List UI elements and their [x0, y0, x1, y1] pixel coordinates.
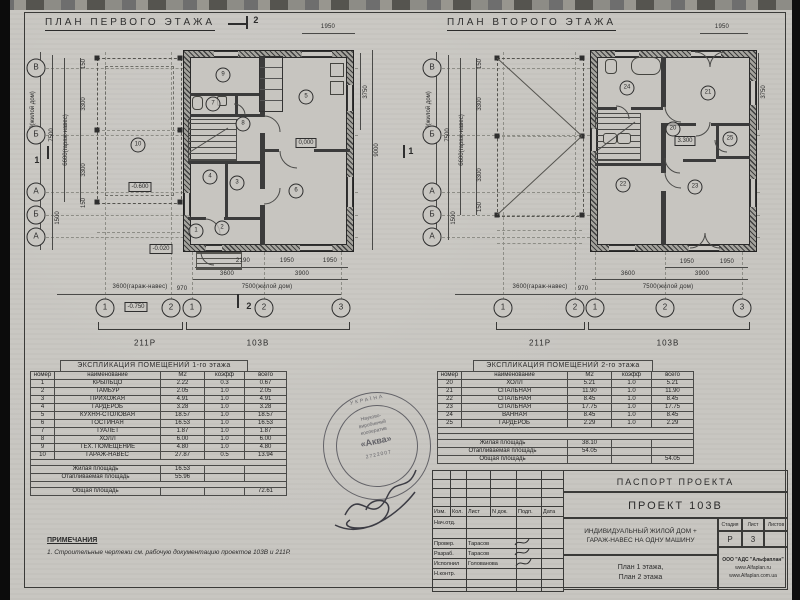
dim-line [455, 294, 742, 295]
project-description-line1: ИНДИВИДУАЛЬНЫЙ ЖИЛОЙ ДОМ + [564, 527, 717, 536]
revision-row [433, 471, 564, 480]
dim-line [592, 279, 748, 280]
dim-line [57, 294, 341, 295]
table-header-row: номернаименованиеМ2коэффвсего [31, 372, 287, 380]
company-cell: ООО "АДС "Альфаплан" www.Alfaplan.ru www… [718, 547, 788, 590]
dim-label: 970 [177, 286, 188, 292]
interior-wall [661, 57, 666, 107]
plan2-title: ПЛАН ВТОРОГО ЭТАЖА [447, 17, 616, 31]
door-opening [689, 245, 719, 251]
dim-label: 3300 [81, 163, 87, 176]
project-description-line2: ГАРАЖ-НАВЕС НА ОДНУ МАШИНУ [564, 536, 717, 545]
project-description: ИНДИВИДУАЛЬНЫЙ ЖИЛОЙ ДОМ + ГАРАЖ-НАВЕС Н… [563, 518, 718, 555]
axis-bubble: Б [423, 206, 442, 225]
dim-line [758, 53, 759, 130]
axis-bubble: 3 [332, 299, 351, 318]
table-row: 7ТУАЛЕТ1.871.01.87 [31, 428, 287, 436]
table-row: 23СПАЛЬНАЯ17.751.017.75 [438, 404, 694, 412]
group-bracket [496, 322, 585, 330]
titleblock-row: Разраб.Тарасов [433, 549, 564, 559]
axis-bubble: 1 [494, 299, 513, 318]
axis-bubble: В [423, 59, 442, 78]
room-bubble-6: 6 [289, 184, 304, 199]
house-plan2 [590, 50, 757, 252]
door-opening [206, 245, 222, 251]
titleblock-row [433, 580, 564, 592]
axis-bubble: 2 [656, 299, 675, 318]
group-bracket [98, 322, 183, 330]
table-row: 2ТАМБУР2.051.02.05 [31, 388, 287, 396]
sink-fixture [603, 133, 617, 144]
section-mark-line [246, 16, 248, 29]
sheet-value: 3 [742, 531, 764, 547]
dim-label: 1500 [451, 211, 457, 224]
carport-post [95, 128, 100, 133]
interior-wall [190, 114, 262, 117]
level-mark: -0.750 [124, 302, 147, 312]
table-row: 20ХОЛЛ5.211.05.21 [438, 380, 694, 388]
dim-line [52, 55, 53, 250]
door-opening [691, 51, 721, 57]
axis-bubble: 2 [566, 299, 585, 318]
project-group-label: 103В [247, 339, 270, 348]
table-row: 21СПАЛЬНАЯ11.901.011.90 [438, 388, 694, 396]
titleblock-row [433, 529, 564, 539]
stage-value: Р [718, 531, 742, 547]
level-mark: -0.020 [149, 244, 172, 254]
dim-label: 150 [477, 202, 483, 212]
dim-line [193, 279, 348, 280]
toilet-fixture [192, 96, 203, 110]
scan-edge-top [0, 0, 800, 10]
axis-bubble: А [27, 183, 46, 202]
axis-bubble: 1 [183, 299, 202, 318]
table-summary-row: Общая площадь54.05 [438, 456, 694, 464]
room-bubble-4: 4 [203, 170, 218, 185]
dim-label: 6600(гараж-навес) [63, 114, 69, 166]
axis-bubble: А [27, 228, 46, 247]
window [300, 245, 332, 251]
table-row: 22СПАЛЬНАЯ8.451.08.45 [438, 396, 694, 404]
titleblock-row: Н.контр. [433, 569, 564, 580]
carport-post [495, 56, 500, 61]
table-row: 25ГАРДЕРОБ2.291.02.29 [438, 420, 694, 428]
window [347, 85, 353, 111]
dim-label: 3600(гараж-навес) [113, 284, 168, 290]
room-bubble-7: 7 [206, 97, 221, 112]
axis-bubble: 1 [96, 299, 115, 318]
interior-wall [225, 164, 228, 217]
carport-post [178, 128, 183, 133]
titleblock-row: Провер.Тарасов [433, 539, 564, 549]
dim-label: 150 [477, 59, 483, 69]
window [302, 51, 332, 57]
dim-label: 7500(жилой дом) [643, 284, 694, 290]
axis-bubble: А [423, 228, 442, 247]
table-row: 4ГАРДЕРОБ3.281.03.28 [31, 404, 287, 412]
room-bubble-23: 23 [688, 180, 703, 195]
dim-label: 1500 [55, 211, 61, 224]
dim-line [372, 50, 373, 250]
axis-bubble: А [423, 183, 442, 202]
axis-bubble: В [27, 59, 46, 78]
sheet-title-cell: План 1 этажа, План 2 этажа [563, 555, 718, 590]
titleblock-row: Нач.отд. [433, 517, 564, 529]
section-mark-label: 2 [253, 15, 258, 25]
kitchen-unit [330, 81, 344, 95]
interior-wall [224, 217, 261, 220]
interior-wall [314, 149, 350, 152]
carport-post [495, 134, 500, 139]
dim-label: 970 [578, 286, 589, 292]
interior-wall [631, 107, 663, 110]
carport-line [97, 232, 180, 233]
room-bubble-1: 1 [189, 224, 204, 239]
dim-label: 1950 [280, 258, 294, 264]
company-url-1: www.Alfaplan.ru [719, 564, 787, 572]
notes-title: ПРИМЕЧАНИЯ [47, 537, 97, 544]
dim-line [80, 58, 81, 202]
level-mark: -0.600 [128, 182, 151, 192]
dim-line [302, 33, 355, 34]
window [347, 177, 353, 207]
dim-label: 3750 [363, 85, 369, 98]
section-mark-label: 1 [34, 155, 39, 165]
dim-line [700, 33, 748, 34]
project-group-label: 103В [657, 339, 680, 348]
table-row: 10ГАРАЖ-НАВЕС27.870.513.94 [31, 452, 287, 460]
window [615, 51, 639, 57]
project-group-label: 211Р [529, 339, 551, 348]
company-url-2: www.Alfaplan.com.ua [719, 572, 787, 580]
table-summary-row: Жилая площадь16.53 [31, 466, 287, 474]
section-mark-label: 1 [408, 146, 413, 156]
section-mark-line [237, 294, 239, 308]
dim-label: 3600 [621, 271, 635, 277]
room-bubble-5: 5 [299, 90, 314, 105]
table-summary-row: Отапливаемая площадь55.96 [31, 474, 287, 482]
dim-label: 150 [81, 198, 87, 208]
table-header-row: номернаименованиеМ2коэффвсего [438, 372, 694, 380]
axis-bubble: 1 [586, 299, 605, 318]
dim-label: 7500 [445, 128, 451, 141]
axis-bubble: 3 [733, 299, 752, 318]
dim-label: 150 [81, 59, 87, 69]
titleblock-left-grid: Изм.Кол.ЛистN док.Подп.Дата Нач.отд. Про… [432, 470, 564, 592]
dim-label: 3300 [477, 97, 483, 110]
dim-label: 1950 [715, 24, 729, 30]
dim-label: 3900 [695, 271, 709, 277]
house-plan1 [183, 50, 354, 252]
table-summary-row: Жилая площадь38.10 [438, 440, 694, 448]
interior-wall [661, 191, 666, 245]
company-name: ООО "АДС "Альфаплан" [719, 556, 787, 564]
dim-label: 1950 [720, 259, 734, 265]
dim-line [476, 58, 477, 215]
dim-label: 3900 [295, 271, 309, 277]
group-bracket [186, 322, 350, 330]
titleblock-row: ИсполнилГолованова [433, 559, 564, 569]
notes-item-1: 1. Строительные чертежи см. рабочую доку… [47, 549, 291, 556]
door-opening [184, 193, 190, 215]
table-row: 3ПРИХОЖАЯ4.911.04.91 [31, 396, 287, 404]
window [750, 179, 756, 207]
table-row: 8ХОЛЛ6.001.06.00 [31, 436, 287, 444]
dim-label: 7500 [49, 128, 55, 141]
carport-post [95, 56, 100, 61]
sheet-label-cell: Лист [742, 518, 764, 531]
floor2-table: номернаименованиеМ2коэффвсего 20ХОЛЛ5.21… [437, 371, 694, 464]
carport-post [580, 134, 585, 139]
section-mark-line [403, 145, 405, 158]
sheets-value [764, 531, 788, 547]
room-bubble-22: 22 [616, 178, 631, 193]
carport-post [580, 56, 585, 61]
table-row: 24ВАННАЯ8.451.08.45 [438, 412, 694, 420]
dim-label: 3300 [477, 168, 483, 181]
room-bubble-10: 10 [131, 138, 146, 153]
table-row: 6ГОСТИНАЯ16.531.016.53 [31, 420, 287, 428]
bathtub [631, 57, 661, 75]
section-mark-line [47, 146, 49, 159]
room-bubble-3: 3 [230, 176, 245, 191]
carport-roof-line [497, 243, 582, 244]
carport-post [95, 200, 100, 205]
interior-wall [235, 93, 238, 117]
interior-wall [260, 205, 265, 245]
table-summary-row: Отапливаемая площадь54.05 [438, 448, 694, 456]
section-mark-label: 2 [246, 301, 251, 311]
room-bubble-20: 20 [666, 122, 681, 137]
dim-label: 3300 [81, 97, 87, 110]
kitchen-unit [330, 63, 344, 77]
level-mark: 0,000 [295, 138, 316, 148]
dim-label: 3600 [220, 271, 234, 277]
window [214, 51, 238, 57]
dim-label: 9000 [374, 143, 380, 156]
interior-wall [188, 217, 206, 220]
sink-fixture [617, 133, 631, 144]
plan1-title: ПЛАН ПЕРВОГО ЭТАЖА [45, 17, 215, 31]
carport-roof-line [497, 230, 582, 231]
carport-post [495, 213, 500, 218]
carport-inner-outline [105, 66, 174, 196]
room-bubble-25: 25 [723, 132, 738, 147]
room-bubble-24: 24 [620, 81, 635, 96]
dim-label: 3600(гараж-навес) [513, 284, 568, 290]
project-group-label: 211Р [134, 339, 156, 348]
level-mark: 3.300 [674, 136, 695, 146]
window [591, 129, 597, 151]
interior-wall [716, 156, 750, 159]
vent-shaft [259, 56, 283, 112]
carport-roof-outline [497, 58, 584, 217]
toilet-fixture [605, 59, 617, 74]
axis-bubble: Б [27, 126, 46, 145]
room-bubble-8: 8 [236, 117, 251, 132]
floor1-table: номернаименованиеМ2коэффвсего 1КРЫЛЬЦО2.… [30, 371, 287, 496]
scan-edge-right [792, 0, 800, 600]
sheet-title-line2: План 2 этажа [564, 573, 717, 583]
dim-label: 1950 [323, 258, 337, 264]
dim-label: 7500(жилой дом) [242, 284, 293, 290]
round-stamp: УКРАЇНА Науково- виробничий кооператив «… [310, 379, 445, 512]
table-row: 9ТЕХ. ПОМЕЩЕНИЕ4.801.04.80 [31, 444, 287, 452]
dim-label: 1950 [680, 259, 694, 265]
dim-label: 1950 [321, 24, 335, 30]
revision-row [433, 498, 564, 507]
dim-label: 2190 [236, 258, 250, 264]
table-row: 1КРЫЛЬЦО2.220.30.67 [31, 380, 287, 388]
interior-wall [597, 107, 617, 110]
revision-row [433, 480, 564, 489]
axis-bubble: Б [423, 126, 442, 145]
dim-line [360, 53, 361, 130]
scan-edge-left [0, 0, 10, 600]
window [609, 245, 635, 251]
room-bubble-21: 21 [701, 86, 716, 101]
interior-wall [595, 163, 663, 166]
dim-label: 3750 [761, 85, 767, 98]
window [750, 81, 756, 105]
passport-title: ПАСПОРТ ПРОЕКТА [563, 470, 788, 492]
axis-bubble: Б [27, 206, 46, 225]
section-mark-line [228, 23, 246, 25]
titleblock-header-row: Изм.Кол.ЛистN док.Подп.Дата [433, 507, 564, 517]
dim-line [448, 55, 449, 240]
revision-row [433, 489, 564, 498]
carport-post [580, 213, 585, 218]
project-number: ПРОЕКТ 103В [563, 492, 788, 518]
interior-wall [683, 159, 716, 162]
group-bracket [588, 322, 750, 330]
carport-post [178, 200, 183, 205]
staircase [188, 119, 237, 161]
interior-wall [716, 126, 719, 159]
dim-label: 6600(гараж-навес) [459, 114, 465, 166]
dim-line [665, 267, 748, 268]
table-summary-row: Общая площадь72.61 [31, 488, 287, 496]
stage-label-cell: Стадия [718, 518, 742, 531]
room-bubble-2: 2 [215, 221, 230, 236]
axis-bubble: 2 [255, 299, 274, 318]
table-row: 5КУХНЯ-СТОЛОВАЯ18.571.018.57 [31, 412, 287, 420]
carport-post [178, 56, 183, 61]
sheet-title-line1: План 1 этажа, [564, 563, 717, 573]
sheets-label-cell: Листов [764, 518, 788, 531]
room-bubble-9: 9 [216, 68, 231, 83]
axis-bubble: 2 [162, 299, 181, 318]
interior-wall [265, 149, 279, 152]
